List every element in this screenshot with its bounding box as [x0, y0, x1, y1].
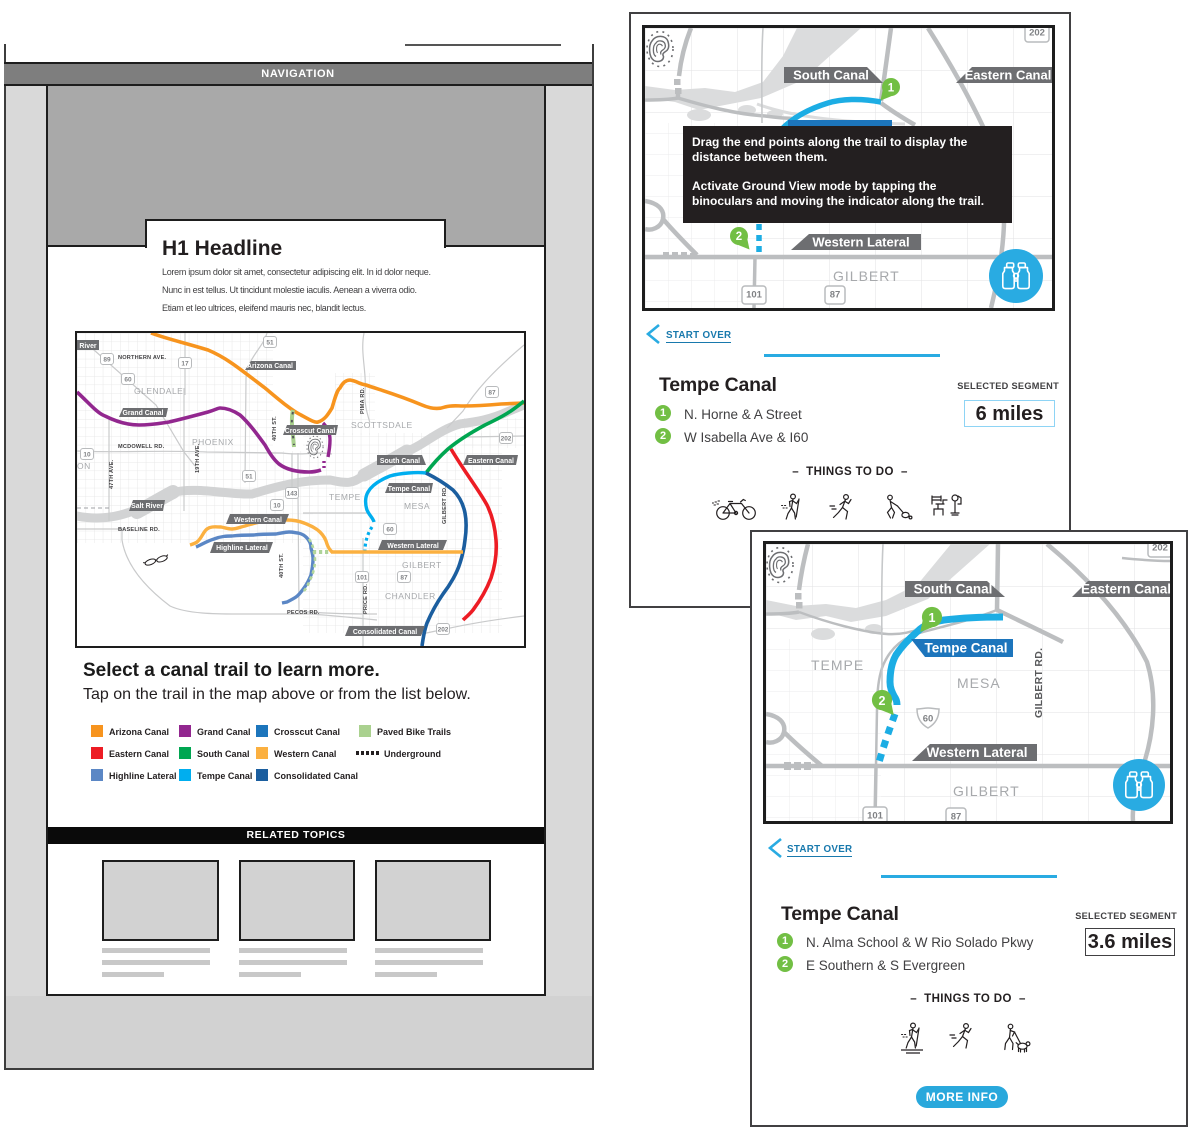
svg-text:1: 1	[929, 611, 936, 625]
svg-text:87: 87	[830, 290, 841, 301]
svg-text:South Canal: South Canal	[380, 458, 420, 465]
svg-text:40TH ST.: 40TH ST.	[279, 553, 285, 578]
svg-text:101: 101	[357, 574, 368, 581]
svg-text:GILBERT RD.: GILBERT RD.	[1033, 648, 1045, 718]
svg-text:River: River	[79, 343, 97, 350]
svg-text:10: 10	[83, 451, 91, 458]
svg-text:GLENDALE: GLENDALE	[134, 386, 183, 396]
svg-text:South Canal: South Canal	[914, 582, 993, 597]
svg-text:17: 17	[181, 360, 189, 367]
svg-text:10: 10	[273, 502, 281, 509]
svg-text:MESA: MESA	[957, 675, 1001, 691]
svg-text:MCDOWELL RD.: MCDOWELL RD.	[118, 444, 165, 450]
svg-text:60: 60	[923, 714, 934, 725]
svg-text:CHANDLER: CHANDLER	[385, 591, 436, 601]
svg-text:143: 143	[287, 490, 298, 497]
svg-text:2: 2	[736, 231, 742, 243]
svg-text:19TH AVE.: 19TH AVE.	[195, 443, 201, 473]
svg-text:87: 87	[488, 389, 496, 396]
svg-text:Crosscut Canal: Crosscut Canal	[285, 428, 336, 435]
svg-text:Eastern Canal: Eastern Canal	[1081, 582, 1170, 597]
svg-text:Eastern Canal: Eastern Canal	[965, 68, 1052, 83]
svg-text:Eastern Canal: Eastern Canal	[468, 458, 514, 465]
svg-text:TEMPE: TEMPE	[811, 657, 864, 673]
svg-text:TEMPE: TEMPE	[329, 492, 361, 502]
svg-text:1: 1	[888, 83, 895, 95]
svg-text:GILBERT: GILBERT	[402, 560, 442, 570]
svg-text:89: 89	[103, 356, 111, 363]
svg-text:NORTHERN AVE.: NORTHERN AVE.	[118, 355, 167, 361]
svg-text:GILBERT RD.: GILBERT RD.	[442, 486, 448, 524]
svg-text:GILBERT: GILBERT	[833, 268, 900, 284]
svg-text:51: 51	[266, 339, 274, 346]
svg-text:PECOS RD.: PECOS RD.	[287, 610, 320, 616]
svg-text:202: 202	[1029, 28, 1045, 39]
svg-text:SCOTTSDALE: SCOTTSDALE	[351, 420, 413, 430]
svg-text:Tempe Canal: Tempe Canal	[388, 486, 430, 493]
svg-text:87: 87	[951, 812, 962, 822]
svg-text:PIMA RD.: PIMA RD.	[360, 387, 366, 414]
svg-text:Western Lateral: Western Lateral	[926, 745, 1027, 760]
svg-text:Western Lateral: Western Lateral	[387, 543, 439, 550]
svg-text:PRICE RD.: PRICE RD.	[363, 584, 369, 614]
svg-text:Arizona Canal: Arizona Canal	[247, 363, 293, 370]
svg-text:GILBERT: GILBERT	[953, 783, 1020, 799]
svg-text:BASELINE RD.: BASELINE RD.	[118, 527, 160, 533]
svg-text:Western Canal: Western Canal	[234, 517, 282, 524]
svg-text:Grand Canal: Grand Canal	[123, 410, 164, 417]
svg-text:Highline Lateral: Highline Lateral	[216, 545, 268, 552]
svg-text:202: 202	[438, 626, 449, 633]
svg-text:Tempe Canal: Tempe Canal	[924, 641, 1007, 656]
svg-text:Salt River: Salt River	[131, 503, 163, 510]
svg-text:60: 60	[124, 376, 132, 383]
svg-text:51: 51	[245, 473, 253, 480]
svg-text:Consolidated Canal: Consolidated Canal	[353, 629, 417, 636]
svg-text:40TH ST.: 40TH ST.	[272, 416, 278, 441]
svg-text:87: 87	[400, 574, 408, 581]
svg-text:101: 101	[746, 290, 763, 301]
svg-text:ON: ON	[77, 461, 91, 471]
svg-text:MESA: MESA	[404, 501, 430, 511]
svg-text:South Canal: South Canal	[793, 68, 869, 83]
svg-text:202: 202	[501, 435, 512, 442]
svg-text:202: 202	[1152, 544, 1168, 554]
svg-text:47TH AVE.: 47TH AVE.	[109, 459, 115, 489]
svg-text:60: 60	[386, 526, 394, 533]
svg-text:101: 101	[867, 811, 884, 822]
svg-text:Western Lateral: Western Lateral	[812, 235, 909, 250]
svg-text:2: 2	[879, 694, 886, 708]
